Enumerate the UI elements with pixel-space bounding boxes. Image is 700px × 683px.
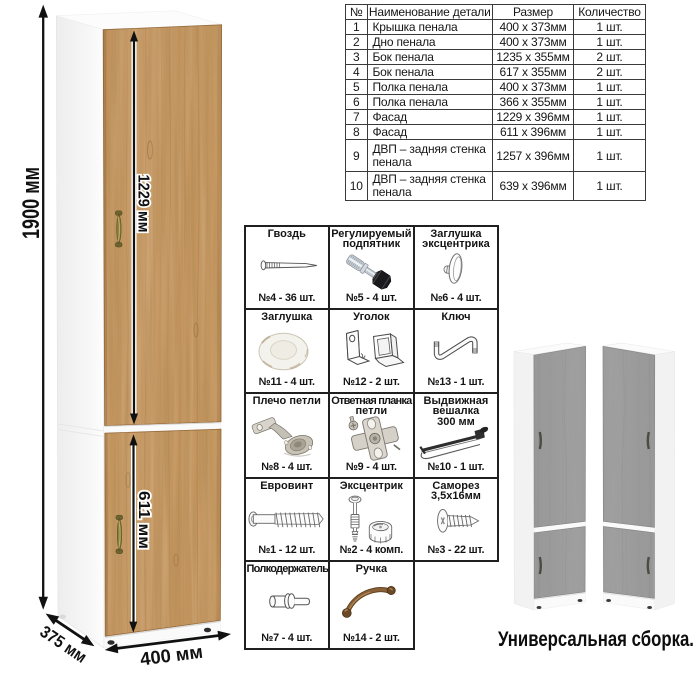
svg-text:1229 мм: 1229 мм [135, 175, 152, 233]
svg-text:611 мм: 611 мм [135, 491, 152, 549]
svg-text:1900 мм: 1900 мм [18, 167, 45, 239]
